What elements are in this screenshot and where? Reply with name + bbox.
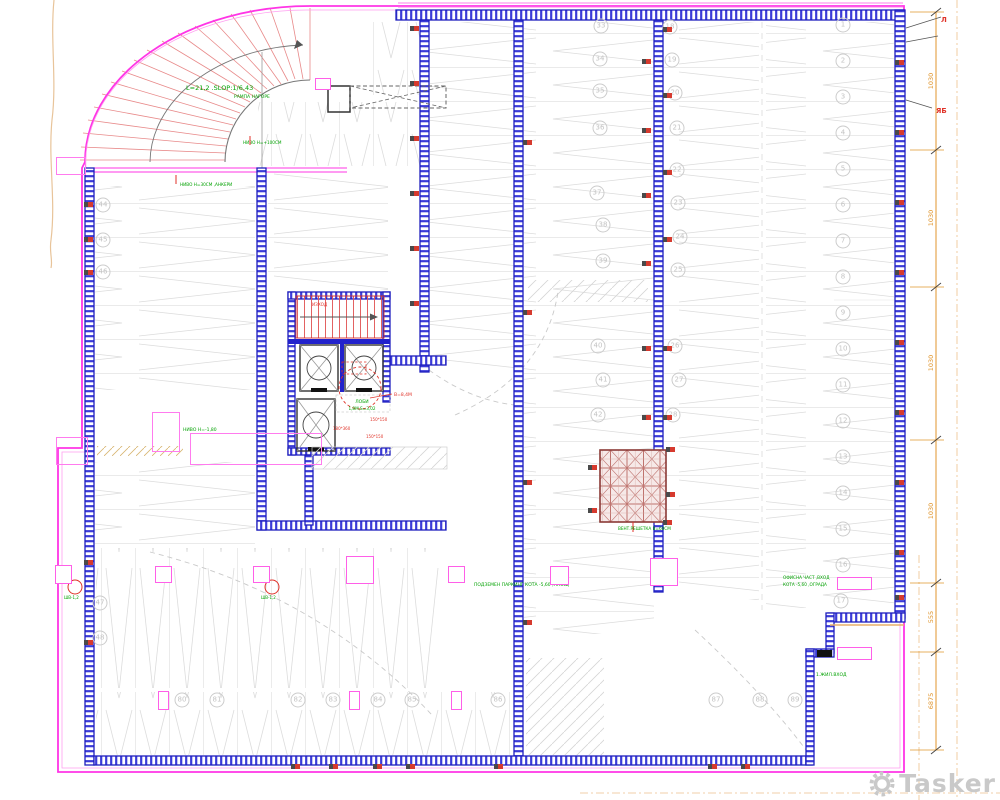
lobby-note: В=8,4М [394,392,412,398]
vent-label: ВЕНТ.РЕШЕТКА В=60СМ [618,526,671,531]
terrain-break-line [50,0,54,268]
elevator [345,345,383,392]
drain-label: ШВ-1,2 [261,595,276,600]
hall-label: ПОДЗЕМЕН ПАРКИНГ КОТА -5,60 ,ПЛОЩ [474,582,569,588]
ramp-label: НИВО Н=30СМ ,АНКЕРИ [180,182,232,187]
ramp-label: НИВО Н=+100СМ [243,140,282,145]
duct-size: 180*360 [333,426,351,431]
stairs-note: ИЗХОД [312,302,328,307]
watermark-text: Tasker [899,769,996,798]
duct-size: 150*150 [370,417,388,422]
entry-label: 1.ЖИЛ.ВХОД [816,672,847,678]
dim-label: 6875 [927,693,935,710]
gear-icon [869,771,895,797]
office-label: ОФИСНА ЧАСТ ,ВХОД [783,575,830,580]
lobby-label: 1,8М,S=3,02 [348,406,375,411]
watermark: Tasker [869,769,996,798]
elevator [300,345,338,392]
parking-bays [95,22,894,755]
floor-plan-drawing: 1030 1030 1030 1030 555 6875 Л ЯБ L=21,2… [0,0,1000,800]
drain-label: ШВ-1,2 [64,595,79,600]
leader-label: Л [941,16,947,24]
dim-label: 1030 [927,210,935,227]
ramp-label: РАМПА НАГОРЕ [234,94,270,100]
cad-floorplan-canvas: 1030 1030 1030 1030 555 6875 Л ЯБ L=21,2… [0,0,1000,800]
ventilation-grid [600,450,666,532]
dim-label: 1030 [927,355,935,372]
ramp-label: L=21,2 .SLOP:1/6,43 [186,84,253,92]
leader-label: ЯБ [936,107,947,115]
dim-label: 1030 [927,503,935,520]
lobby-label: ЛОБИ [355,399,368,405]
stair-core [296,296,384,338]
office-label: КОТА -5,60 ,ОГРАДА [783,582,827,587]
duct-size: 150*150 [366,434,384,439]
dim-label: 1030 [927,73,935,90]
left-label: НИВО Н=-1,80 [183,427,217,433]
dim-label: 555 [927,611,935,623]
elevator [297,399,335,451]
